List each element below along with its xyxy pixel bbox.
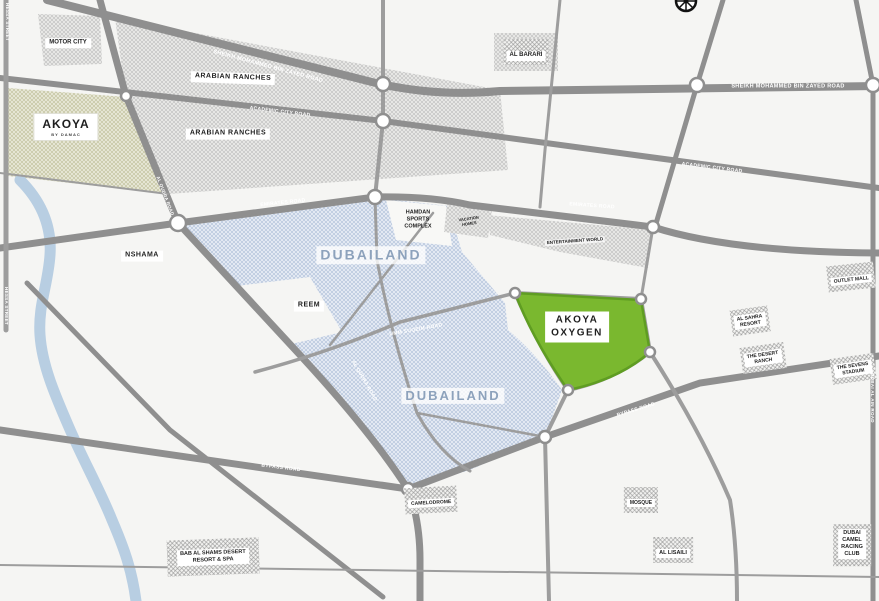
roundabout <box>510 288 520 298</box>
roundabout <box>866 78 879 92</box>
label-outlet-mall: OUTLET MALL <box>826 262 876 293</box>
roundabout <box>645 347 655 357</box>
label-reem: REEM <box>294 301 324 312</box>
label-al-sahra-resort: AL SAHRA RESORT <box>729 305 770 336</box>
label-dubailand-north: DUBAILAND <box>316 246 425 264</box>
roundabout <box>563 385 573 395</box>
roundabout <box>368 190 382 204</box>
label-al-lisaili: AL LISAILI <box>653 537 693 563</box>
road-label-dubai-al-ain: DUBAI AL AIN ROAD <box>869 373 875 423</box>
roundabout <box>690 78 704 92</box>
label-nshama: NSHAMA <box>121 251 163 262</box>
roundabout <box>121 91 131 101</box>
label-bab-al-shams: BAB AL SHAMS DESERT RESORT & SPA <box>167 537 260 576</box>
label-dubai-camel-racing-club: DUBAI CAMEL RACING CLUB <box>833 524 871 566</box>
label-al-barari-north: AL BARARI <box>504 39 549 65</box>
label-hamdan-sports-complex: HAMDAN SPORTS COMPLEX <box>404 210 431 231</box>
roundabout <box>539 431 551 443</box>
label-arabian-ranches-south: ARABIAN RANCHES <box>186 129 270 140</box>
road-label-smbz-east: SHEIKH MOHAMMED BIN ZAYED ROAD <box>731 84 844 91</box>
label-dubailand-south: DUBAILAND <box>401 388 504 404</box>
label-akoya-oxygen: AKOYA OXYGEN <box>545 312 609 343</box>
label-akoya: AKOYA BY DAMAC <box>33 113 98 141</box>
roundabout <box>170 215 186 231</box>
road-label-hessa-north: HESSA STREET <box>4 3 10 41</box>
label-camelodrome: CAMELODROME <box>404 486 458 515</box>
label-mosque: MOSQUE <box>624 487 658 513</box>
roundabout <box>376 77 390 91</box>
compass-north-icon <box>676 0 696 11</box>
road-label-hessa-south: HESSA STREET <box>3 287 9 325</box>
akoya-name: AKOYA <box>42 117 89 132</box>
roundabout <box>636 294 646 304</box>
roundabout <box>376 114 390 128</box>
label-motor-city: MOTOR CITY <box>45 38 91 48</box>
akoya-subtitle: BY DAMAC <box>42 132 89 137</box>
roundabout <box>647 221 659 233</box>
location-map: MOTOR CITY ARABIAN RANCHES ARABIAN RANCH… <box>0 0 879 601</box>
